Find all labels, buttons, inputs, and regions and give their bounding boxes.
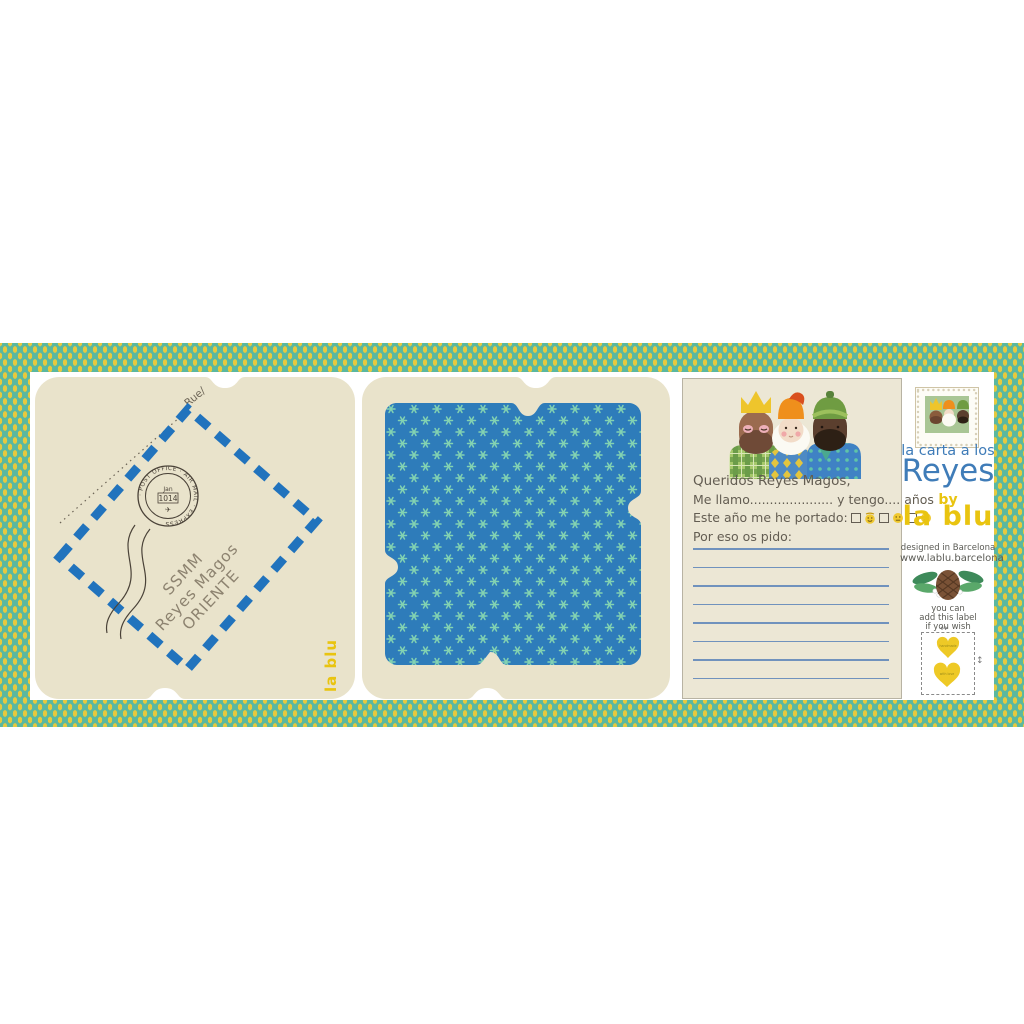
envelope-back-piece (362, 377, 670, 699)
panel-inner-area: Rue/ · POST OFFICE · AIR MAIL · EXPRESS … (30, 372, 994, 700)
vertical-arrow-icon: ↕ (976, 656, 984, 666)
label-hearts: handmade with love (922, 633, 974, 694)
pinecone-illustration (908, 564, 988, 604)
postmark-month: Jan (162, 486, 172, 493)
horizontal-arrow-icon: ↔ (940, 624, 948, 634)
good-face-icon (864, 512, 876, 524)
writing-line (693, 641, 889, 643)
title-big: Reyes (900, 456, 996, 487)
kings-postage-stamp (915, 387, 979, 448)
writing-line (693, 604, 889, 606)
writing-line (693, 678, 889, 680)
behaved-checkbox-ok (879, 513, 889, 523)
note-line-3: if you wish (900, 623, 996, 632)
writing-line (693, 622, 889, 624)
writing-line (693, 585, 889, 587)
website-url: www.lablu.barcelona (900, 553, 996, 564)
heart2-text: with love (940, 672, 954, 676)
letter-template: Queridos Reyes Magos, Me llamo..........… (682, 378, 902, 699)
vertical-brand-logo: la blu (322, 628, 340, 692)
brand-logo: la blu (900, 503, 996, 530)
diamond-pattern-border: Rue/ · POST OFFICE · AIR MAIL · EXPRESS … (0, 343, 1024, 727)
letter-greeting: Queridos Reyes Magos, (693, 473, 851, 489)
designed-in-line: designed in Barcelona (900, 543, 996, 553)
king-gaspar (769, 392, 813, 479)
writing-line (693, 567, 889, 569)
letter-name-line: Me llamo..................... y tengo...… (693, 492, 934, 507)
envelope-front-piece: Rue/ · POST OFFICE · AIR MAIL · EXPRESS … (35, 377, 355, 699)
letter-request-line: Por eso os pido: (693, 529, 792, 544)
blue-star-fabric-square (385, 403, 641, 665)
king-baltasar (807, 391, 861, 479)
three-kings-illustration (709, 385, 873, 479)
brand-sidebar: la carta a los Reyes by la blu designed … (900, 372, 996, 700)
behaved-checkbox-good (851, 513, 861, 523)
letter-behaved-row: Este año me he portado: (693, 510, 932, 525)
heart1-text: handmade (939, 644, 956, 648)
writing-line (693, 659, 889, 661)
letter-behaved-label: Este año me he portado: (693, 510, 848, 525)
writing-line (693, 548, 889, 550)
plane-icon: ✈ (165, 506, 171, 514)
postmark-year: 1014 (158, 494, 177, 503)
fabric-panel-sheet: Rue/ · POST OFFICE · AIR MAIL · EXPRESS … (0, 0, 1024, 1024)
cut-label-box: handmade with love (921, 632, 975, 695)
